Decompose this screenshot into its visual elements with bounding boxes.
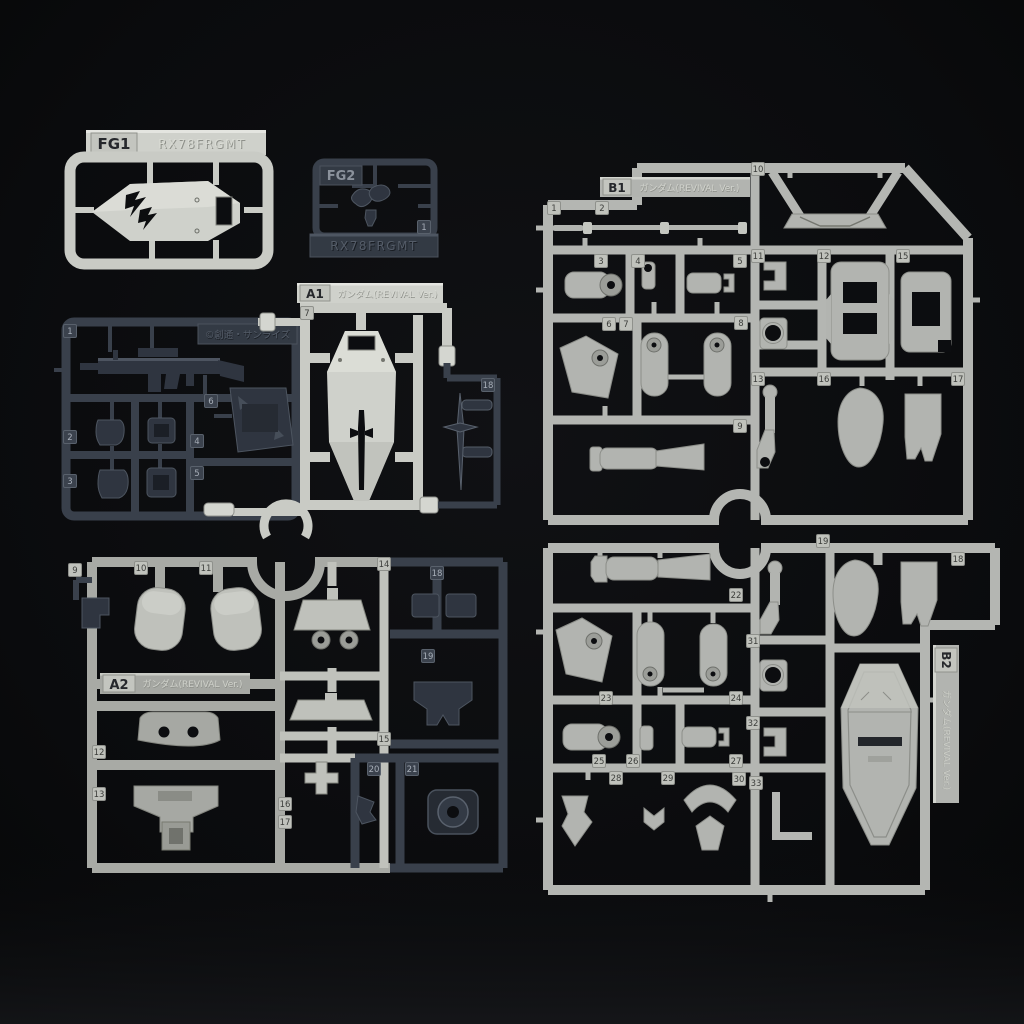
svg-text:30: 30 xyxy=(734,775,745,785)
svg-text:4: 4 xyxy=(635,257,640,267)
thigh-armor-part xyxy=(637,622,664,686)
part-number-tag: 18 xyxy=(482,379,495,392)
svg-text:7: 7 xyxy=(623,320,628,330)
svg-text:7: 7 xyxy=(304,309,309,319)
svg-text:13: 13 xyxy=(753,375,764,385)
part-number-tag: 31 xyxy=(747,635,760,648)
part-number-tag: 12 xyxy=(93,746,106,759)
svg-text:18: 18 xyxy=(432,569,443,579)
part-number-tag: 11 xyxy=(752,250,765,263)
cylinder-parts xyxy=(563,724,729,750)
svg-text:20: 20 xyxy=(369,765,380,775)
svg-text:12: 12 xyxy=(94,748,105,758)
part-number-tag: 16 xyxy=(279,798,292,811)
part-number-tag: 2 xyxy=(64,431,77,444)
part-number-tag: 5 xyxy=(734,255,747,268)
svg-text:5: 5 xyxy=(737,257,742,267)
svg-text:6: 6 xyxy=(208,397,213,407)
svg-text:33: 33 xyxy=(751,779,762,789)
svg-text:6: 6 xyxy=(606,320,611,330)
svg-text:19: 19 xyxy=(818,537,829,547)
manipulator-slot xyxy=(154,424,169,437)
heel-armor-part xyxy=(905,394,941,461)
heel-armor-part xyxy=(901,562,937,626)
part-number-tag: 2 xyxy=(596,202,609,215)
product-photo-gunpla-runners: FG1 RX78FRGMT RX78FRGMT FG2 RX78FRGMT RX… xyxy=(0,0,1024,1024)
svg-text:27: 27 xyxy=(731,757,742,767)
torso-frame-part xyxy=(901,272,951,352)
svg-text:1: 1 xyxy=(421,223,426,233)
svg-text:4: 4 xyxy=(194,437,199,447)
svg-text:17: 17 xyxy=(280,818,291,828)
part-number-tag: 27 xyxy=(730,755,743,768)
part-number-tag: 23 xyxy=(600,692,613,705)
svg-text:21: 21 xyxy=(407,765,418,775)
svg-text:10: 10 xyxy=(136,564,147,574)
fg2-code-label: FG2 xyxy=(327,169,356,184)
part-number-tag: 24 xyxy=(730,692,743,705)
part-number-tag: 14 xyxy=(378,558,391,571)
part-number-tag: 21 xyxy=(406,763,419,776)
svg-text:15: 15 xyxy=(898,252,909,262)
part-number-tag: 7 xyxy=(301,307,314,320)
part-number-tag: 6 xyxy=(205,395,218,408)
svg-text:23: 23 xyxy=(601,694,612,704)
fg1-screw-dot xyxy=(195,229,199,233)
fg1-code-label: FG1 xyxy=(98,135,131,153)
svg-text:19: 19 xyxy=(423,652,434,662)
a2-code-label: A2 xyxy=(109,678,128,693)
part-number-tag: 15 xyxy=(378,733,391,746)
shield-pin xyxy=(381,358,385,362)
fg1-screw-dot xyxy=(195,198,199,202)
part-number-tag: 11 xyxy=(200,562,213,575)
part-number-tag: 13 xyxy=(93,788,106,801)
a2-name-label: ガンダム(REVIVAL Ver.) xyxy=(142,678,242,690)
part-number-tag: 10 xyxy=(752,163,765,176)
part-number-tag: 8 xyxy=(735,317,748,330)
part-number-tag: 5 xyxy=(191,467,204,480)
a1-name-label: ガンダム(REVIVAL Ver.) xyxy=(337,288,437,300)
polycap-holder-part xyxy=(760,660,787,691)
svg-text:26: 26 xyxy=(628,757,639,767)
svg-text:24: 24 xyxy=(731,694,742,704)
svg-text:1: 1 xyxy=(67,327,72,337)
bazooka-part xyxy=(590,444,704,471)
fg2-model-label: RX78FRGMT xyxy=(330,239,418,253)
fg1-model-label: RX78FRGMT xyxy=(158,137,246,151)
joint-collar xyxy=(260,313,275,331)
fg2-model-bar-highlight xyxy=(310,234,438,237)
part-number-tag: 6 xyxy=(603,318,616,331)
saber-connector-part xyxy=(462,400,492,410)
foot-block-part xyxy=(412,594,439,617)
b2-code-label: B2 xyxy=(939,651,953,669)
svg-text:8: 8 xyxy=(738,319,743,329)
b2-name-label: ガンダム(REVIVAL Ver.) xyxy=(941,690,953,790)
svg-text:18: 18 xyxy=(953,555,964,565)
svg-text:15: 15 xyxy=(379,735,390,745)
saber-connector-part xyxy=(462,447,492,457)
foot-block-part xyxy=(446,594,476,617)
svg-text:29: 29 xyxy=(663,774,674,784)
part-number-tag: 19 xyxy=(422,650,435,663)
svg-text:25: 25 xyxy=(594,757,605,767)
part-number-tag: 26 xyxy=(627,755,640,768)
part-number-tag: 28 xyxy=(610,772,623,785)
svg-text:18: 18 xyxy=(483,381,494,391)
part-number-tag: 20 xyxy=(368,763,381,776)
part-number-tag: 17 xyxy=(279,816,292,829)
svg-text:16: 16 xyxy=(819,375,830,385)
svg-text:12: 12 xyxy=(819,252,830,262)
svg-text:17: 17 xyxy=(953,375,964,385)
part-number-tag: 22 xyxy=(730,589,743,602)
torso-frame-part xyxy=(826,262,894,360)
part-number-tag: 4 xyxy=(632,255,645,268)
fist-part xyxy=(98,470,128,498)
part-number-tag: 4 xyxy=(191,435,204,448)
svg-text:2: 2 xyxy=(67,433,72,443)
part-number-tag: 16 xyxy=(818,373,831,386)
part-number-tag: 33 xyxy=(750,777,763,790)
part-number-tag: 13 xyxy=(752,373,765,386)
svg-text:1: 1 xyxy=(551,204,556,214)
part-number-tag: 18 xyxy=(952,553,965,566)
b1-code-label: B1 xyxy=(608,181,626,195)
part-number-tag: 12 xyxy=(818,250,831,263)
backpack-part xyxy=(230,388,293,452)
runner-photo-canvas: FG1 RX78FRGMT RX78FRGMT FG2 RX78FRGMT RX… xyxy=(0,0,1024,1024)
main-camera-part xyxy=(428,790,478,834)
svg-text:10: 10 xyxy=(753,165,764,175)
thigh-armor-part xyxy=(641,333,668,396)
part-number-tag: 9 xyxy=(734,420,747,433)
svg-text:32: 32 xyxy=(748,719,759,729)
a1-code-label: A1 xyxy=(306,287,324,301)
part-number-tag: 1 xyxy=(418,221,431,234)
part-number-tag: 3 xyxy=(595,255,608,268)
shield-notch xyxy=(348,336,375,350)
part-number-tag: 3 xyxy=(64,475,77,488)
manipulator-slot xyxy=(153,475,169,490)
part-number-tag: 1 xyxy=(64,325,77,338)
polycap-holder-part xyxy=(760,318,787,349)
part-number-tag: 17 xyxy=(952,373,965,386)
part-number-tag: 9 xyxy=(69,564,82,577)
svg-text:14: 14 xyxy=(379,560,390,570)
copyright-label: ©創通・サンライズ xyxy=(205,329,291,341)
joint-clip xyxy=(204,503,234,516)
svg-text:22: 22 xyxy=(731,591,742,601)
thigh-armor-part xyxy=(704,333,731,396)
part-number-tag: 10 xyxy=(135,562,148,575)
svg-text:9: 9 xyxy=(72,566,77,576)
thigh-armor-part xyxy=(700,624,727,686)
svg-text:2: 2 xyxy=(599,204,604,214)
part-number-tag: 7 xyxy=(620,318,633,331)
svg-text:11: 11 xyxy=(753,252,764,262)
fg1-plate-window xyxy=(216,197,232,225)
svg-text:28: 28 xyxy=(611,774,622,784)
part-number-tag: 18 xyxy=(431,567,444,580)
part-number-tag: 25 xyxy=(593,755,606,768)
part-number-tag: 15 xyxy=(897,250,910,263)
chest-armor-part xyxy=(138,712,220,746)
svg-text:13: 13 xyxy=(94,790,105,800)
svg-text:11: 11 xyxy=(201,564,212,574)
part-number-tag: 32 xyxy=(747,717,760,730)
fist-part xyxy=(96,420,124,445)
svg-text:9: 9 xyxy=(737,422,742,432)
part-number-tag: 19 xyxy=(817,535,830,548)
part-number-tag: 30 xyxy=(733,773,746,786)
svg-text:3: 3 xyxy=(67,477,72,487)
svg-text:31: 31 xyxy=(748,637,759,647)
joint-collar xyxy=(420,497,438,513)
shield-pin xyxy=(338,358,342,362)
part-number-tag: 1 xyxy=(548,202,561,215)
part-number-tag: 29 xyxy=(662,772,675,785)
svg-text:5: 5 xyxy=(194,469,199,479)
b1-name-label: ガンダム(REVIVAL Ver.) xyxy=(639,182,739,194)
svg-text:16: 16 xyxy=(280,800,291,810)
svg-text:3: 3 xyxy=(598,257,603,267)
